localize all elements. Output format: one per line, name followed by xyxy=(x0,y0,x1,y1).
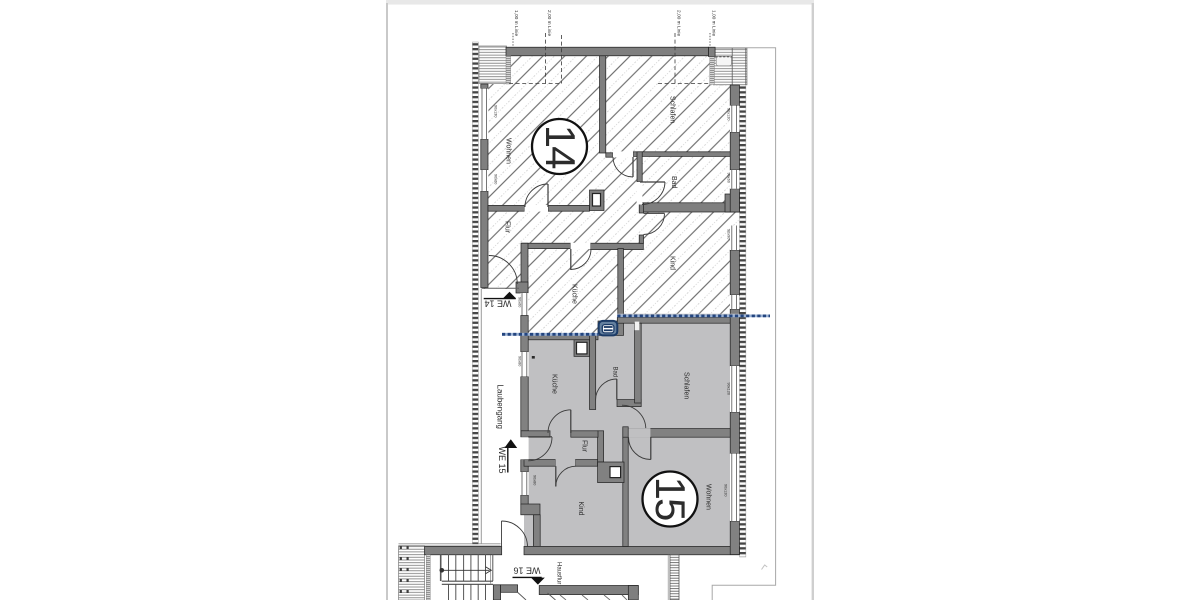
svg-text:90x60: 90x60 xyxy=(494,174,498,184)
svg-text:15: 15 xyxy=(647,477,694,520)
svg-text:90x120: 90x120 xyxy=(727,108,731,120)
svg-text:Bad: Bad xyxy=(612,367,618,378)
svg-text:90x80: 90x80 xyxy=(518,356,522,366)
svg-text:Schlafen: Schlafen xyxy=(668,96,675,123)
svg-text:WE 14: WE 14 xyxy=(484,298,511,308)
svg-text:Bad: Bad xyxy=(670,176,677,189)
svg-text:90x120: 90x120 xyxy=(724,484,728,496)
svg-text:Kind: Kind xyxy=(668,256,675,270)
svg-text:WE 16: WE 16 xyxy=(513,566,540,576)
svg-text:1,00 m Linie: 1,00 m Linie xyxy=(513,10,519,36)
svg-text:1,00 m Linie: 1,00 m Linie xyxy=(711,10,717,36)
svg-text:90x80: 90x80 xyxy=(533,475,537,485)
svg-text:WE 15: WE 15 xyxy=(497,447,507,474)
svg-text:2,00 m Linie: 2,00 m Linie xyxy=(546,10,552,36)
svg-text:Hausflur: Hausflur xyxy=(556,562,562,584)
svg-text:Kind: Kind xyxy=(577,502,584,516)
svg-text:Flur: Flur xyxy=(503,221,510,234)
svg-text:Wohnen: Wohnen xyxy=(705,484,712,510)
svg-text:90x120: 90x120 xyxy=(727,383,731,395)
svg-text:Flur: Flur xyxy=(580,440,587,453)
svg-text:90x90: 90x90 xyxy=(727,229,731,239)
svg-text:Küche: Küche xyxy=(550,374,557,394)
svg-text:90x120: 90x120 xyxy=(494,105,498,117)
svg-text:Wohnen: Wohnen xyxy=(504,138,511,164)
svg-text:90x60: 90x60 xyxy=(518,297,522,307)
svg-text:90x60: 90x60 xyxy=(727,173,731,183)
svg-text:Laubengang: Laubengang xyxy=(496,385,505,430)
svg-text:Schlafen: Schlafen xyxy=(682,372,689,399)
svg-text:2,00 m Linie: 2,00 m Linie xyxy=(676,10,682,36)
svg-text:14: 14 xyxy=(537,125,584,169)
svg-text:Küche: Küche xyxy=(570,284,577,304)
